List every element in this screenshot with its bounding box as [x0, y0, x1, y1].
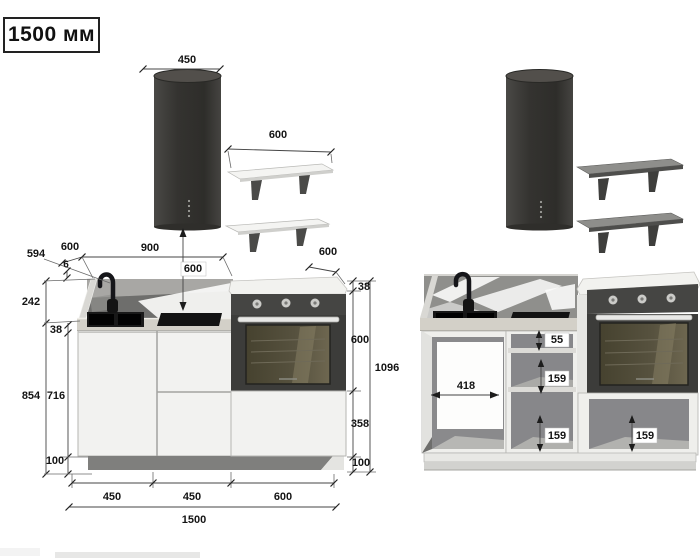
oven-column-open	[577, 272, 700, 455]
dim-total-width: 1500	[182, 514, 206, 526]
faucet-base	[107, 299, 118, 313]
faucet-base	[463, 299, 474, 313]
shelf-board	[508, 348, 576, 353]
dim-back-span: 900	[141, 242, 159, 254]
dim-top-drawer-clearance: 55	[551, 334, 563, 346]
hood-body	[154, 75, 221, 227]
dim-oven-drawer-height: 358	[351, 418, 369, 430]
dim-width-3: 600	[274, 491, 292, 503]
technical-drawing: 450 600 594 600 900 6	[0, 0, 700, 558]
oven-column	[229, 277, 347, 456]
dim-splash-gap: 6	[63, 260, 69, 271]
plinth	[88, 456, 333, 470]
hood-top	[154, 70, 221, 83]
drawing-title: 1500 мм	[8, 23, 95, 47]
dim-oven-depth: 600	[319, 246, 337, 258]
dim-width-2: 450	[183, 491, 201, 503]
base-cabinet-fronts	[78, 331, 233, 456]
bottom-artifact	[55, 552, 200, 558]
bottom-artifact	[0, 548, 40, 556]
hood-top	[506, 70, 573, 83]
dim-shelf-width: 600	[269, 129, 287, 141]
hood-body	[506, 75, 573, 227]
dim-middle-drawer-clearance: 159	[548, 373, 566, 385]
oven-handle	[238, 317, 339, 322]
dim-cabinet-inner-width: 418	[457, 380, 475, 392]
dim-oven-column-height: 1096	[375, 362, 399, 374]
dim-front-height: 716	[47, 390, 65, 402]
base-platform	[424, 453, 696, 470]
kitchen-drawing-canvas: 450 600 594 600 900 6	[0, 0, 700, 558]
dim-lower-drawer-clearance: 159	[548, 430, 566, 442]
dim-plinth-height: 100	[46, 455, 64, 467]
sink-counter-open	[420, 274, 580, 331]
oven-drawer-front	[231, 391, 346, 456]
dim-base-total-height: 854	[22, 390, 41, 402]
dim-counter-depth: 600	[61, 241, 79, 253]
dim-width-1: 450	[103, 491, 121, 503]
dim-worktop-depth: 594	[27, 248, 46, 260]
cooker-hood-2	[506, 70, 573, 231]
dim-oven-height: 600	[351, 334, 369, 346]
dim-oven-drawer-clearance: 159	[636, 430, 654, 442]
worktop	[420, 318, 580, 331]
oven-glass	[246, 325, 330, 384]
drawing-title-box: 1500 мм	[3, 17, 100, 53]
oven-glass	[600, 323, 688, 385]
cooktop	[157, 313, 222, 326]
dim-backsplash-height: 242	[22, 296, 40, 308]
dim-hood-clearance: 600	[184, 263, 202, 275]
dim-worktop-thickness: 38	[50, 324, 62, 336]
oven-handle	[596, 315, 692, 320]
cooker-hood	[154, 70, 221, 231]
dim-hood-width: 450	[178, 54, 196, 66]
dim-oven-plinth-height: 100	[352, 457, 370, 469]
hood-bottom	[154, 224, 221, 231]
